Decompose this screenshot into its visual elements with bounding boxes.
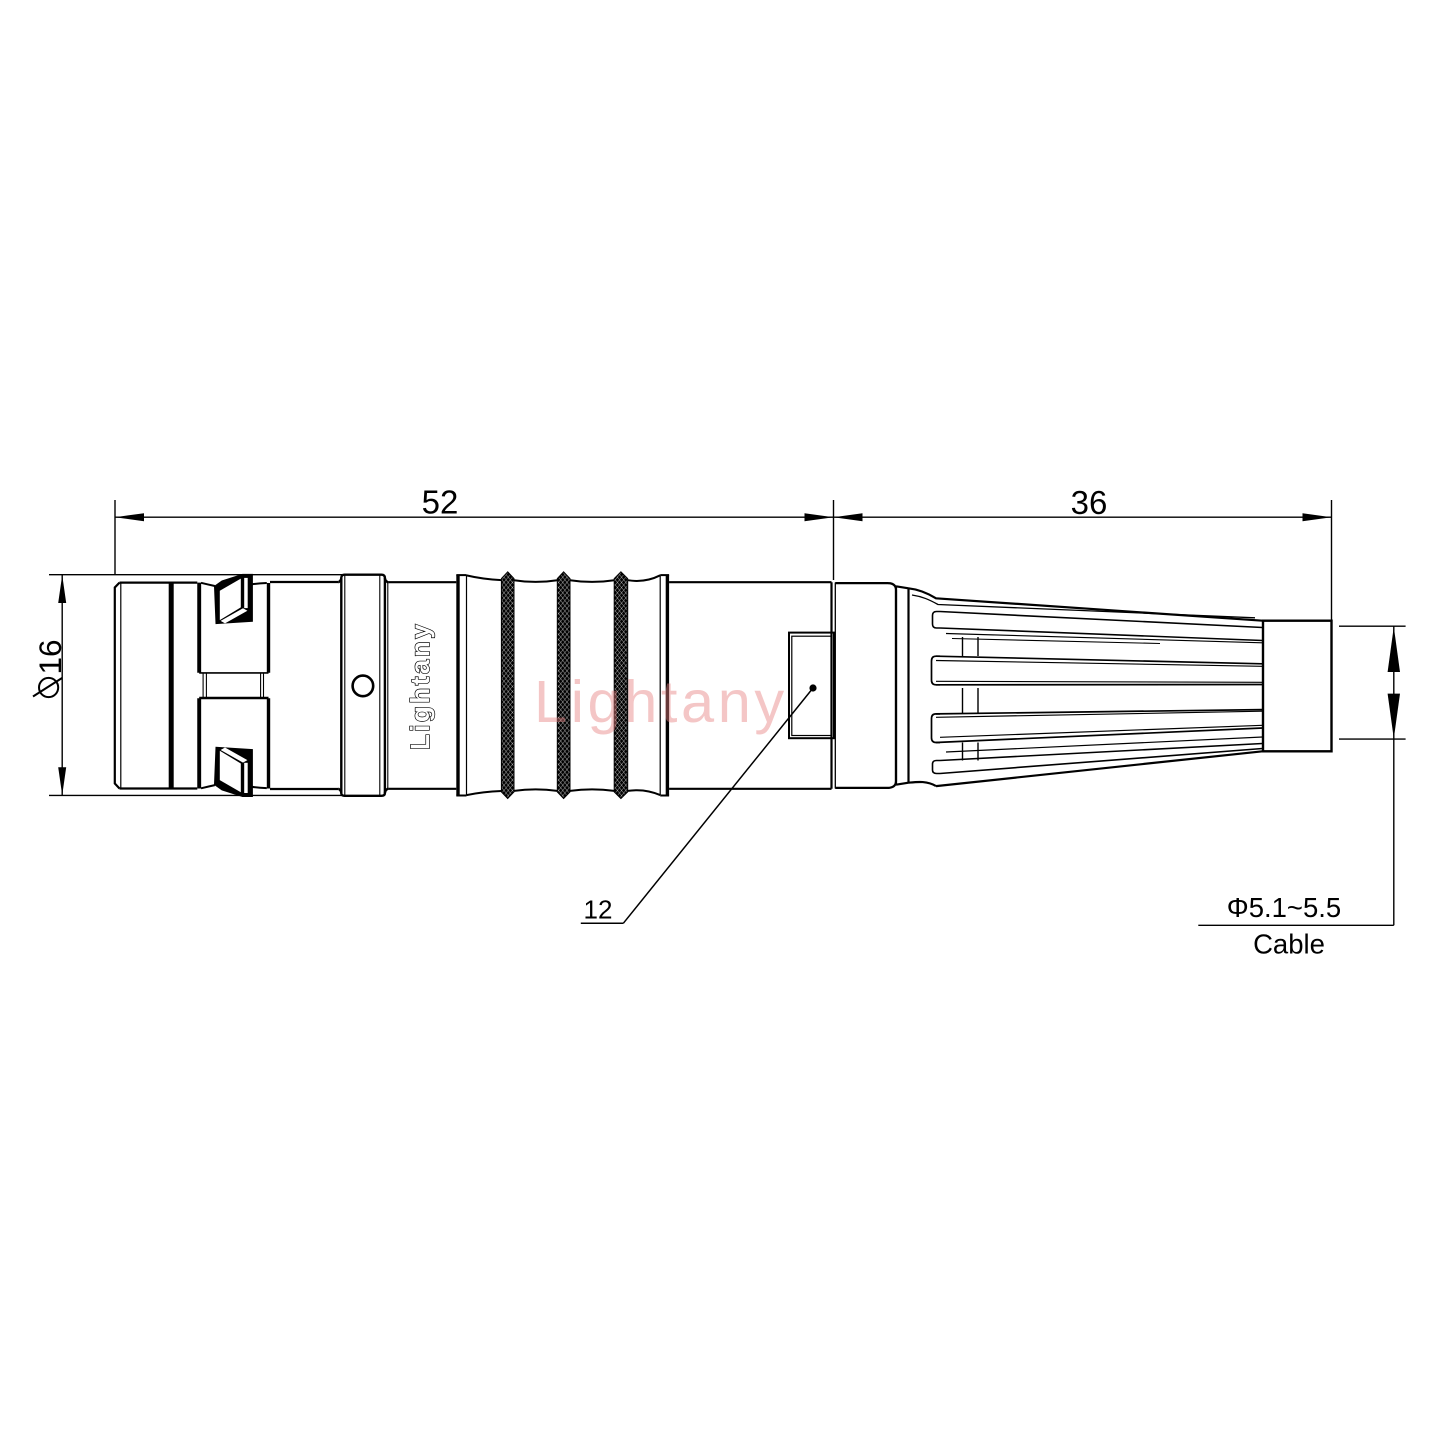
svg-text:Φ5.1~5.5: Φ5.1~5.5 <box>1227 892 1341 923</box>
svg-text:Lightany: Lightany <box>405 622 435 750</box>
svg-text:Cable: Cable <box>1253 929 1325 960</box>
svg-text:36: 36 <box>1071 484 1108 521</box>
svg-text:52: 52 <box>422 484 459 521</box>
svg-text:12: 12 <box>584 894 613 924</box>
svg-text:Lightany: Lightany <box>534 668 788 735</box>
svg-text:16: 16 <box>32 639 68 674</box>
